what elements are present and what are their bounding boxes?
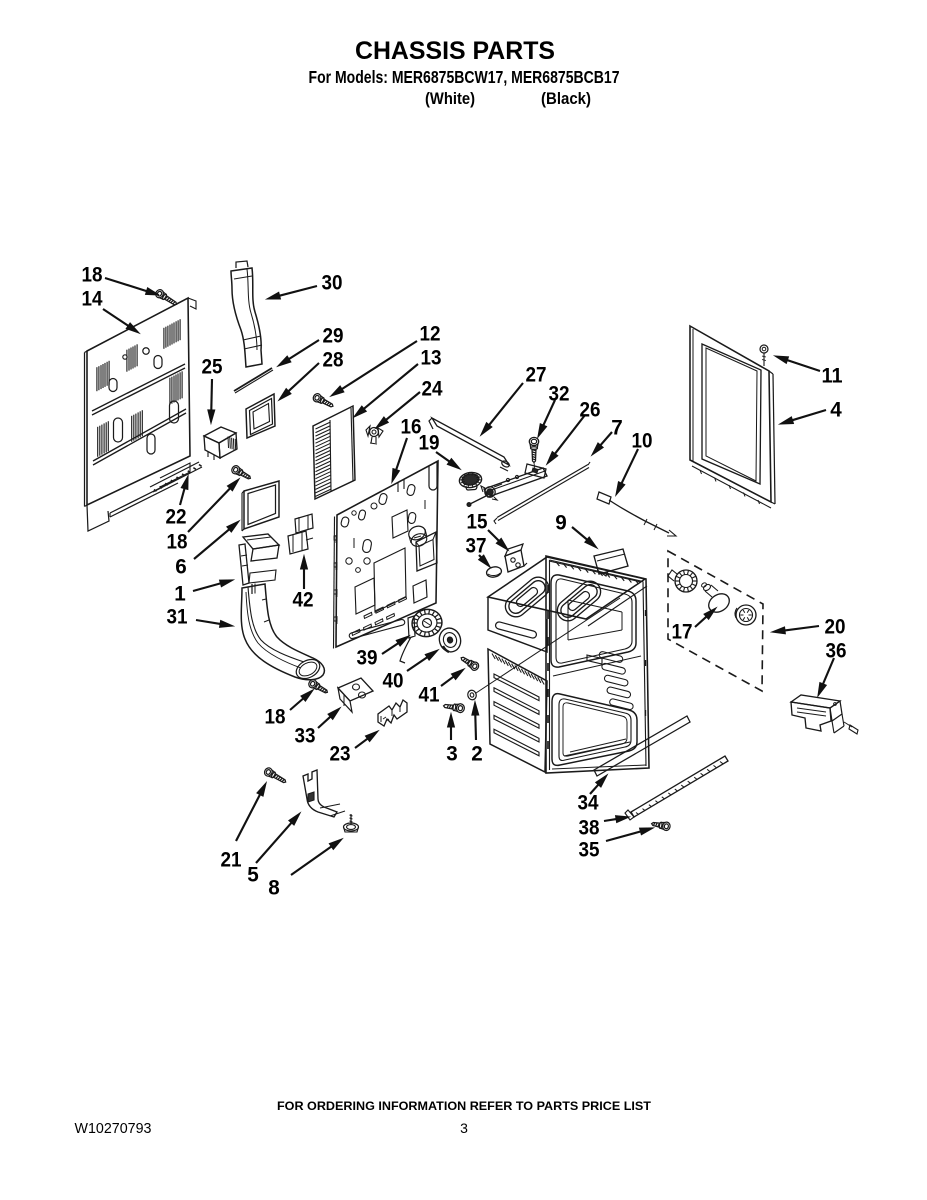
svg-text:CHASSIS PARTS: CHASSIS PARTS [355,37,555,65]
svg-text:18: 18 [265,705,286,729]
svg-text:35: 35 [579,838,600,862]
svg-text:27: 27 [526,363,547,387]
svg-text:22: 22 [166,505,187,529]
svg-text:2: 2 [471,742,483,766]
svg-text:32: 32 [549,382,570,406]
svg-text:24: 24 [422,377,443,401]
svg-text:11: 11 [822,364,843,388]
svg-text:26: 26 [580,398,601,422]
svg-text:5: 5 [247,863,259,887]
svg-text:14: 14 [82,287,103,311]
svg-text:1: 1 [174,582,186,606]
svg-text:34: 34 [578,791,599,815]
svg-text:21: 21 [221,848,242,872]
svg-text:38: 38 [579,816,600,840]
svg-text:9: 9 [555,511,567,535]
svg-text:20: 20 [825,615,846,639]
svg-text:13: 13 [421,346,442,370]
svg-text:3: 3 [460,1120,468,1136]
svg-text:18: 18 [82,263,103,287]
svg-text:7: 7 [611,416,623,440]
svg-text:42: 42 [293,588,314,612]
svg-text:3: 3 [446,742,458,766]
svg-text:W10270793: W10270793 [75,1121,152,1137]
svg-text:36: 36 [826,639,847,663]
svg-text:19: 19 [419,431,440,455]
svg-text:For Models: MER6875BCW17, MER6: For Models: MER6875BCW17, MER6875BCB17 [309,67,620,87]
svg-text:10: 10 [632,429,653,453]
svg-text:FOR ORDERING INFORMATION REFER: FOR ORDERING INFORMATION REFER TO PARTS … [277,1101,651,1113]
svg-text:15: 15 [467,510,488,534]
svg-text:8: 8 [268,876,280,900]
svg-text:40: 40 [383,669,404,693]
svg-text:(White): (White) [425,89,475,108]
svg-text:4: 4 [830,398,842,422]
svg-text:25: 25 [202,355,223,379]
svg-text:39: 39 [357,646,378,670]
svg-text:23: 23 [330,742,351,766]
svg-text:33: 33 [295,724,316,748]
svg-text:31: 31 [167,605,188,629]
svg-text:28: 28 [323,348,344,372]
svg-text:37: 37 [466,534,487,558]
svg-text:30: 30 [322,271,343,295]
svg-text:(Black): (Black) [541,89,591,108]
svg-text:29: 29 [323,324,344,348]
svg-text:6: 6 [175,555,187,579]
svg-text:17: 17 [672,620,693,644]
svg-text:18: 18 [167,530,188,554]
svg-text:12: 12 [420,322,441,346]
svg-text:41: 41 [419,683,440,707]
